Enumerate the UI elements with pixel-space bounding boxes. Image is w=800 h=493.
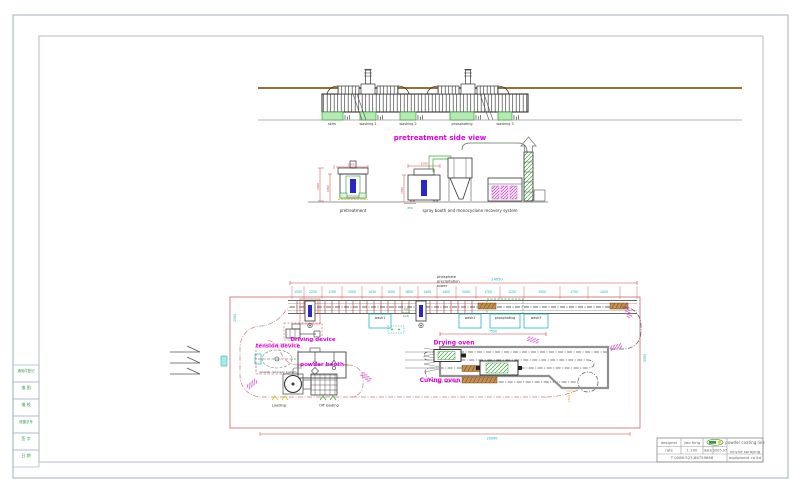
svg-text:1700: 1700	[328, 290, 336, 294]
direction-arrow-icon	[360, 371, 372, 383]
product-name: powder coating line	[725, 440, 765, 445]
loading-station	[272, 396, 336, 400]
tank-label: skim	[328, 122, 337, 126]
tunnel-body	[322, 94, 528, 112]
svg-text:2000: 2000	[462, 290, 470, 294]
tank-label: washing 1	[359, 122, 376, 126]
svg-text:2000: 2000	[600, 290, 608, 294]
pretreatment-strip	[288, 299, 637, 333]
driving-device-label: Driving device	[290, 337, 335, 343]
designer-value: jiao feng	[683, 440, 701, 445]
svg-text:1000: 1000	[387, 290, 395, 294]
drying-oven-label: Drying oven	[434, 340, 475, 347]
direction-arrow-icon	[610, 343, 623, 351]
tunnel-opening	[350, 179, 356, 193]
cyclone-funnel	[450, 178, 470, 199]
exhaust-fan-unit	[327, 70, 409, 95]
direction-arrow-icon	[527, 336, 540, 344]
flow-arrows	[170, 346, 200, 374]
dim-label: 2350	[400, 187, 404, 194]
tension-device-label: tension device	[256, 344, 301, 350]
left-dim: 1500	[233, 314, 237, 322]
svg-text:tank: tank	[403, 314, 410, 318]
svg-text:1800: 1800	[405, 290, 413, 294]
cad-drawing-canvas: 通用件登记 描 图 描 校 底图总号 签 字 日 期 skim washing …	[0, 0, 800, 493]
bottom-dim: 20000	[487, 437, 498, 441]
cyan-marker	[221, 356, 227, 366]
svg-text:1450: 1450	[368, 290, 376, 294]
plan-tank-label: wash2	[465, 316, 476, 320]
signature-row-label: 描 图	[21, 384, 30, 390]
plan-tank-label: phosphating	[495, 316, 516, 320]
svg-text:precipitation: precipitation	[437, 280, 460, 284]
svg-text:2250: 2250	[309, 290, 317, 294]
signature-row-label: 日 期	[21, 452, 30, 458]
dim-label: 1400	[347, 163, 354, 167]
direction-arrow-icon	[624, 306, 633, 319]
left-signature-strip: 通用件登记 描 图 描 校 底图总号 签 字 日 期	[13, 365, 39, 467]
side-view-title: pretreatment side view	[394, 134, 487, 142]
svg-text:phosphate: phosphate	[437, 275, 457, 279]
signature-row-label: 底图总号	[19, 419, 33, 424]
side-view: skim washing 1 washing 2 phosphating was…	[258, 70, 742, 143]
company-logo-icon	[707, 439, 723, 445]
plan-tank-label: wash1	[375, 316, 386, 320]
dim-label: 1650	[326, 185, 330, 192]
right-dim: 5500	[643, 354, 647, 362]
svg-text:2000: 2000	[348, 290, 356, 294]
signature-row-label: 描 校	[21, 401, 30, 407]
loading-label: Loading	[272, 404, 286, 408]
company-name-line2: equipment co.ltd	[729, 455, 762, 460]
direction-arrow-icon	[246, 378, 258, 390]
rate-label: rate	[665, 447, 673, 452]
signature-row-label: 通用件登记	[18, 368, 36, 373]
elevation-label: spray booth and monocyclone recovery sys…	[422, 208, 517, 213]
plan-boundary	[230, 297, 640, 428]
curing-oven-label: Curing oven	[420, 377, 461, 384]
title-block: designer jiao feng rate 1:100 date 2005.…	[657, 438, 765, 462]
svg-text:tower: tower	[437, 284, 448, 288]
ext-dim: 1500	[567, 395, 571, 402]
powder-booth-label: powder booth	[300, 362, 344, 368]
tower-note: phosphate precipitation tower	[437, 275, 460, 288]
plan-view: 24050 1500 2250 1700 2000 1450 1000 1800…	[170, 275, 647, 441]
designer-label: designer	[661, 440, 678, 445]
dim-label: 850	[407, 206, 413, 210]
offloading-label: Off loading	[319, 404, 339, 408]
date-label: date	[704, 448, 713, 452]
elevation-section: 2300 1650 1400 pretreatment 2350 1500 85…	[308, 137, 548, 213]
svg-text:1500: 1500	[538, 290, 546, 294]
date-value: 2005.07	[713, 448, 727, 452]
total-dim: 24050	[491, 278, 503, 282]
booth-opening	[421, 180, 427, 196]
dim-label: 1500	[420, 162, 427, 166]
drawing-frame	[13, 15, 788, 478]
company-name-line1: xinyue spraying	[730, 449, 761, 454]
tank-label: washing 3	[496, 122, 513, 126]
svg-text:1750: 1750	[570, 290, 578, 294]
pretreatment-elevation: 2300 1650 1400 pretreatment	[316, 161, 368, 213]
svg-text:1400: 1400	[442, 290, 450, 294]
drying-oven-fan	[434, 350, 466, 362]
svg-text:1700: 1700	[484, 290, 492, 294]
tank-label: phosphating	[451, 122, 472, 126]
oven-dim: 7500	[489, 330, 497, 334]
phone-value: T 0086-523-86759666	[670, 455, 714, 460]
exhaust-fan-unit	[427, 70, 509, 95]
cyclone-top	[448, 158, 472, 178]
svg-text:1445: 1445	[423, 290, 431, 294]
signature-row-label: 签 字	[21, 435, 30, 441]
curing-oven-fan	[476, 361, 522, 375]
tank-label: washing 2	[399, 122, 416, 126]
elevation-label: pretreatment	[340, 208, 367, 213]
powder-recovery-label: powder recovery system	[259, 370, 296, 374]
rate-value: 1:100	[687, 447, 699, 452]
svg-text:1250: 1250	[508, 290, 516, 294]
segment-dims: 1500 2250 1700 2000 1450 1000 1800 1445 …	[294, 290, 608, 294]
dim-label: 2300	[316, 183, 320, 190]
svg-text:1500: 1500	[294, 290, 302, 294]
plan-tank-label: wash3	[531, 316, 542, 320]
exhaust-stack	[524, 152, 533, 201]
